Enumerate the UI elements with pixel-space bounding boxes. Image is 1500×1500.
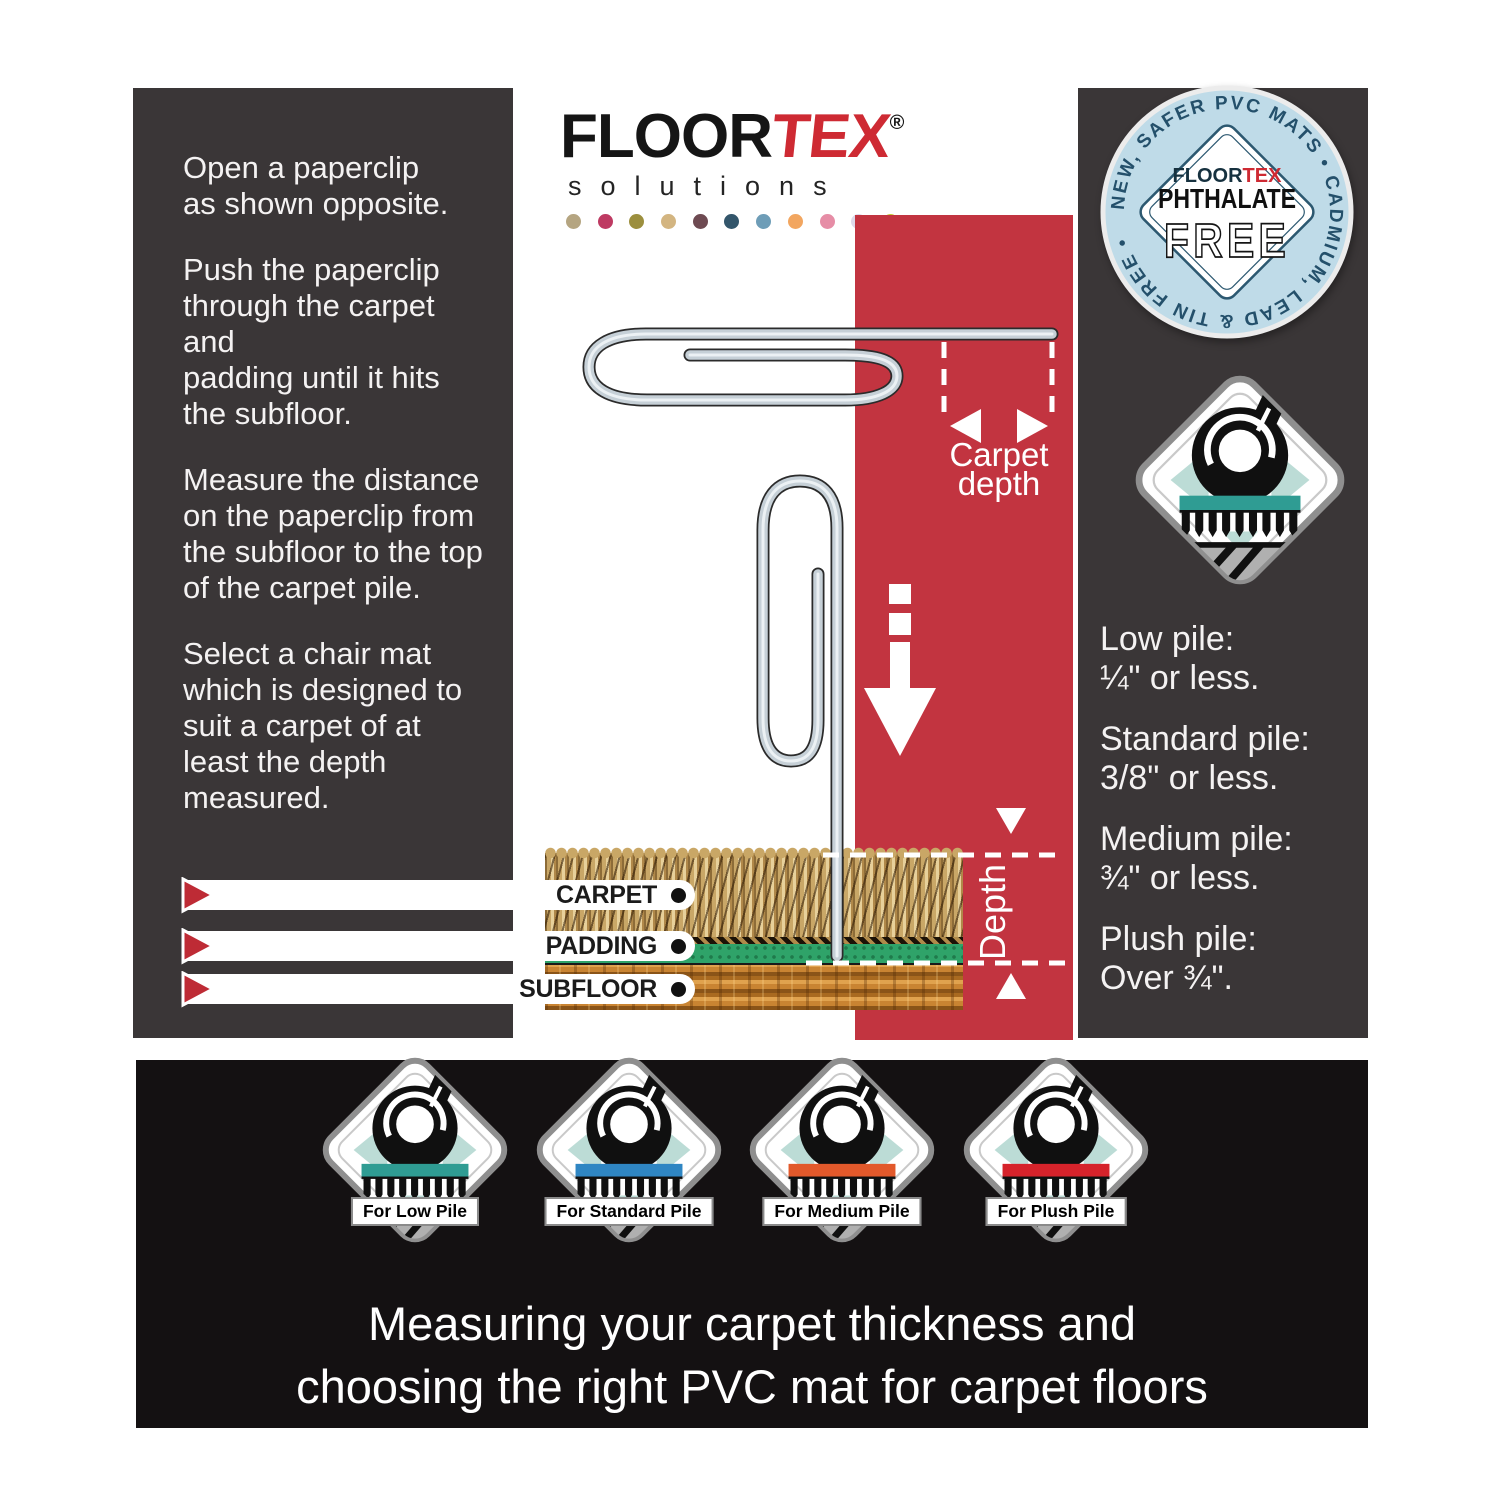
logo-word-red: TEX — [769, 106, 893, 168]
logo-dot — [788, 214, 803, 229]
pile-guide-list: Low pile: ¼" or less. Standard pile: 3/8… — [1100, 620, 1310, 1020]
logo-color-dots — [560, 214, 898, 229]
pile-item-plush: Plush pile: Over ¾". — [1100, 920, 1310, 998]
red-triangle-icon — [180, 971, 216, 1011]
pile-name: Medium pile: — [1100, 820, 1310, 859]
banner-standard-pile: For Standard Pile — [545, 1197, 714, 1226]
instruction-step-1: Open a paperclip as shown opposite. — [183, 150, 493, 222]
subfloor-pointer-bar: SUBFLOOR — [184, 974, 695, 1004]
label-dot-icon — [671, 888, 686, 903]
instruction-step-4: Select a chair mat which is designed to … — [183, 636, 493, 816]
pile-value: 3/8" or less. — [1100, 759, 1310, 798]
phthalate-free-badge: NEW, SAFER PVC MATS • CADMIUM, LEAD & TI… — [1100, 85, 1354, 339]
badge-line1: PHTHALATE — [1158, 183, 1296, 214]
carpet-layer-label: CARPET — [556, 881, 657, 910]
logo-tagline: solutions — [560, 171, 910, 202]
label-dot-icon — [671, 939, 686, 954]
headline-line-1: Measuring your carpet thickness and — [136, 1292, 1368, 1355]
logo-dot — [820, 214, 835, 229]
instructions-block: Open a paperclip as shown opposite. Push… — [183, 150, 493, 846]
pile-name: Standard pile: — [1100, 720, 1310, 759]
logo-dot — [661, 214, 676, 229]
logo-dot — [566, 214, 581, 229]
carpet-pointer-bar: CARPET — [184, 880, 695, 910]
floortex-logo: FLOORTEX® solutions — [560, 92, 910, 229]
subfloor-layer-label: SUBFLOOR — [519, 975, 657, 1004]
logo-dot — [724, 214, 739, 229]
pile-value: ¼" or less. — [1100, 659, 1310, 698]
label-dot-icon — [671, 982, 686, 997]
padding-pointer-bar: PADDING — [184, 931, 695, 961]
banner-plush-pile: For Plush Pile — [986, 1197, 1127, 1226]
logo-wordmark: FLOORTEX® — [560, 92, 910, 168]
pile-item-medium: Medium pile: ¾" or less. — [1100, 820, 1310, 898]
pile-value: ¾" or less. — [1100, 859, 1310, 898]
pile-name: Low pile: — [1100, 620, 1310, 659]
badge-line2: FREE — [1164, 215, 1290, 268]
banner-low-pile: For Low Pile — [351, 1197, 479, 1226]
infographic-page: { "brand": { "black": "FLOOR", "red": "T… — [0, 0, 1500, 1500]
instruction-step-2: Push the paperclip through the carpet an… — [183, 252, 493, 432]
footer-headline: Measuring your carpet thickness and choo… — [136, 1292, 1368, 1418]
red-triangle-icon — [180, 877, 216, 917]
logo-dot — [598, 214, 613, 229]
pile-value: Over ¾". — [1100, 959, 1310, 998]
pile-item-low: Low pile: ¼" or less. — [1100, 620, 1310, 698]
logo-dot — [756, 214, 771, 229]
mat-pile-icon-teal — [1128, 368, 1352, 592]
padding-layer-label: PADDING — [546, 932, 657, 961]
depth-label: Depth — [972, 856, 1014, 960]
pile-name: Plush pile: — [1100, 920, 1310, 959]
instruction-step-3: Measure the distance on the paperclip fr… — [183, 462, 493, 606]
pile-item-standard: Standard pile: 3/8" or less. — [1100, 720, 1310, 798]
banner-medium-pile: For Medium Pile — [762, 1197, 921, 1226]
logo-dot — [693, 214, 708, 229]
logo-dot — [629, 214, 644, 229]
red-triangle-icon — [180, 928, 216, 968]
logo-word-black: FLOOR — [560, 102, 772, 171]
carpet-depth-label: Carpet depth — [918, 440, 1080, 498]
headline-line-2: choosing the right PVC mat for carpet fl… — [136, 1355, 1368, 1418]
